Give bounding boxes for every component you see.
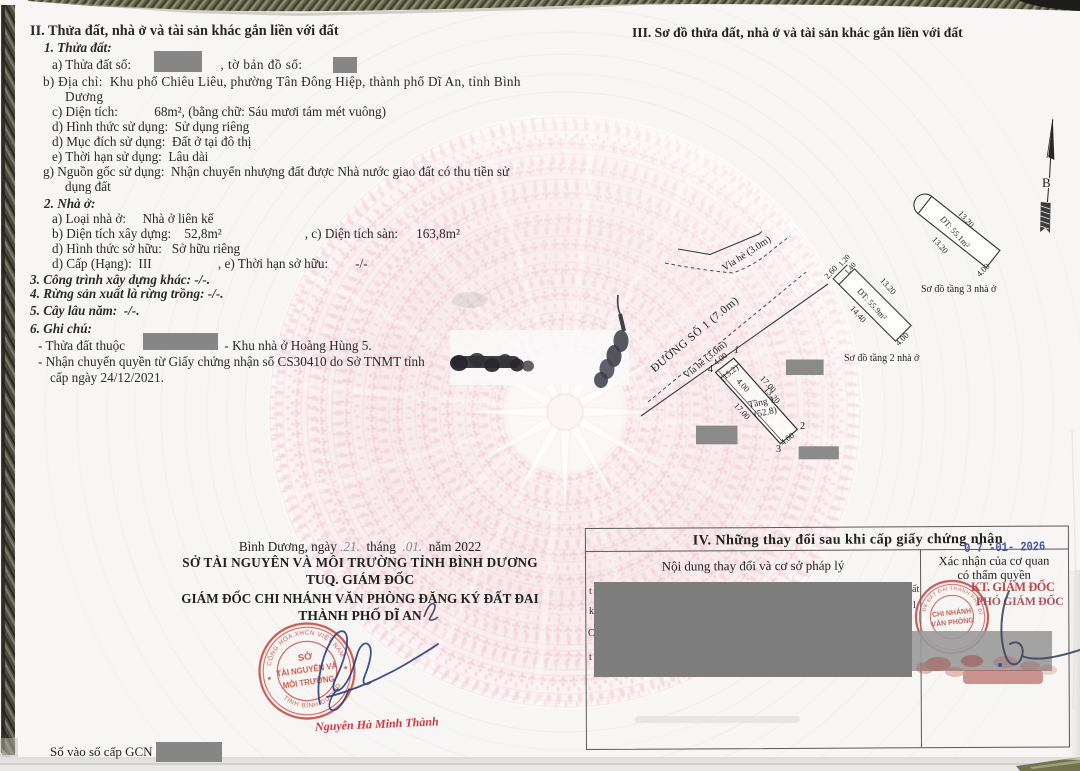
svg-text:Sơ đồ tầng 3 nhà ở: Sơ đồ tầng 3 nhà ở — [921, 284, 997, 295]
svg-text:l: l — [913, 600, 916, 611]
svg-text:B: B — [1042, 175, 1051, 190]
svg-text:2.60: 2.60 — [822, 263, 839, 281]
svg-text:CHI NHÁNH: CHI NHÁNH — [932, 606, 972, 619]
svg-text:t: t — [589, 652, 592, 663]
svg-text:t: t — [589, 586, 592, 597]
svg-text:Sơ đồ tầng 2 nhà ở: Sơ đồ tầng 2 nhà ở — [844, 353, 920, 364]
svg-text:★: ★ — [266, 675, 272, 683]
svg-text:1: 1 — [734, 345, 739, 356]
svg-text:C: C — [588, 628, 595, 639]
svg-text:2: 2 — [800, 421, 805, 432]
svg-text:13.20: 13.20 — [930, 235, 950, 256]
svg-text:Vỉa hè (3.0m): Vỉa hè (3.0m) — [720, 234, 773, 274]
svg-text:3: 3 — [776, 444, 781, 455]
svg-text:SỞ: SỞ — [297, 650, 314, 664]
svg-text:4: 4 — [708, 364, 713, 375]
svg-text:ất: ất — [912, 584, 919, 595]
svg-text:★: ★ — [343, 664, 349, 672]
svg-text:k: k — [589, 606, 594, 617]
svg-text:13.20: 13.20 — [878, 276, 898, 297]
